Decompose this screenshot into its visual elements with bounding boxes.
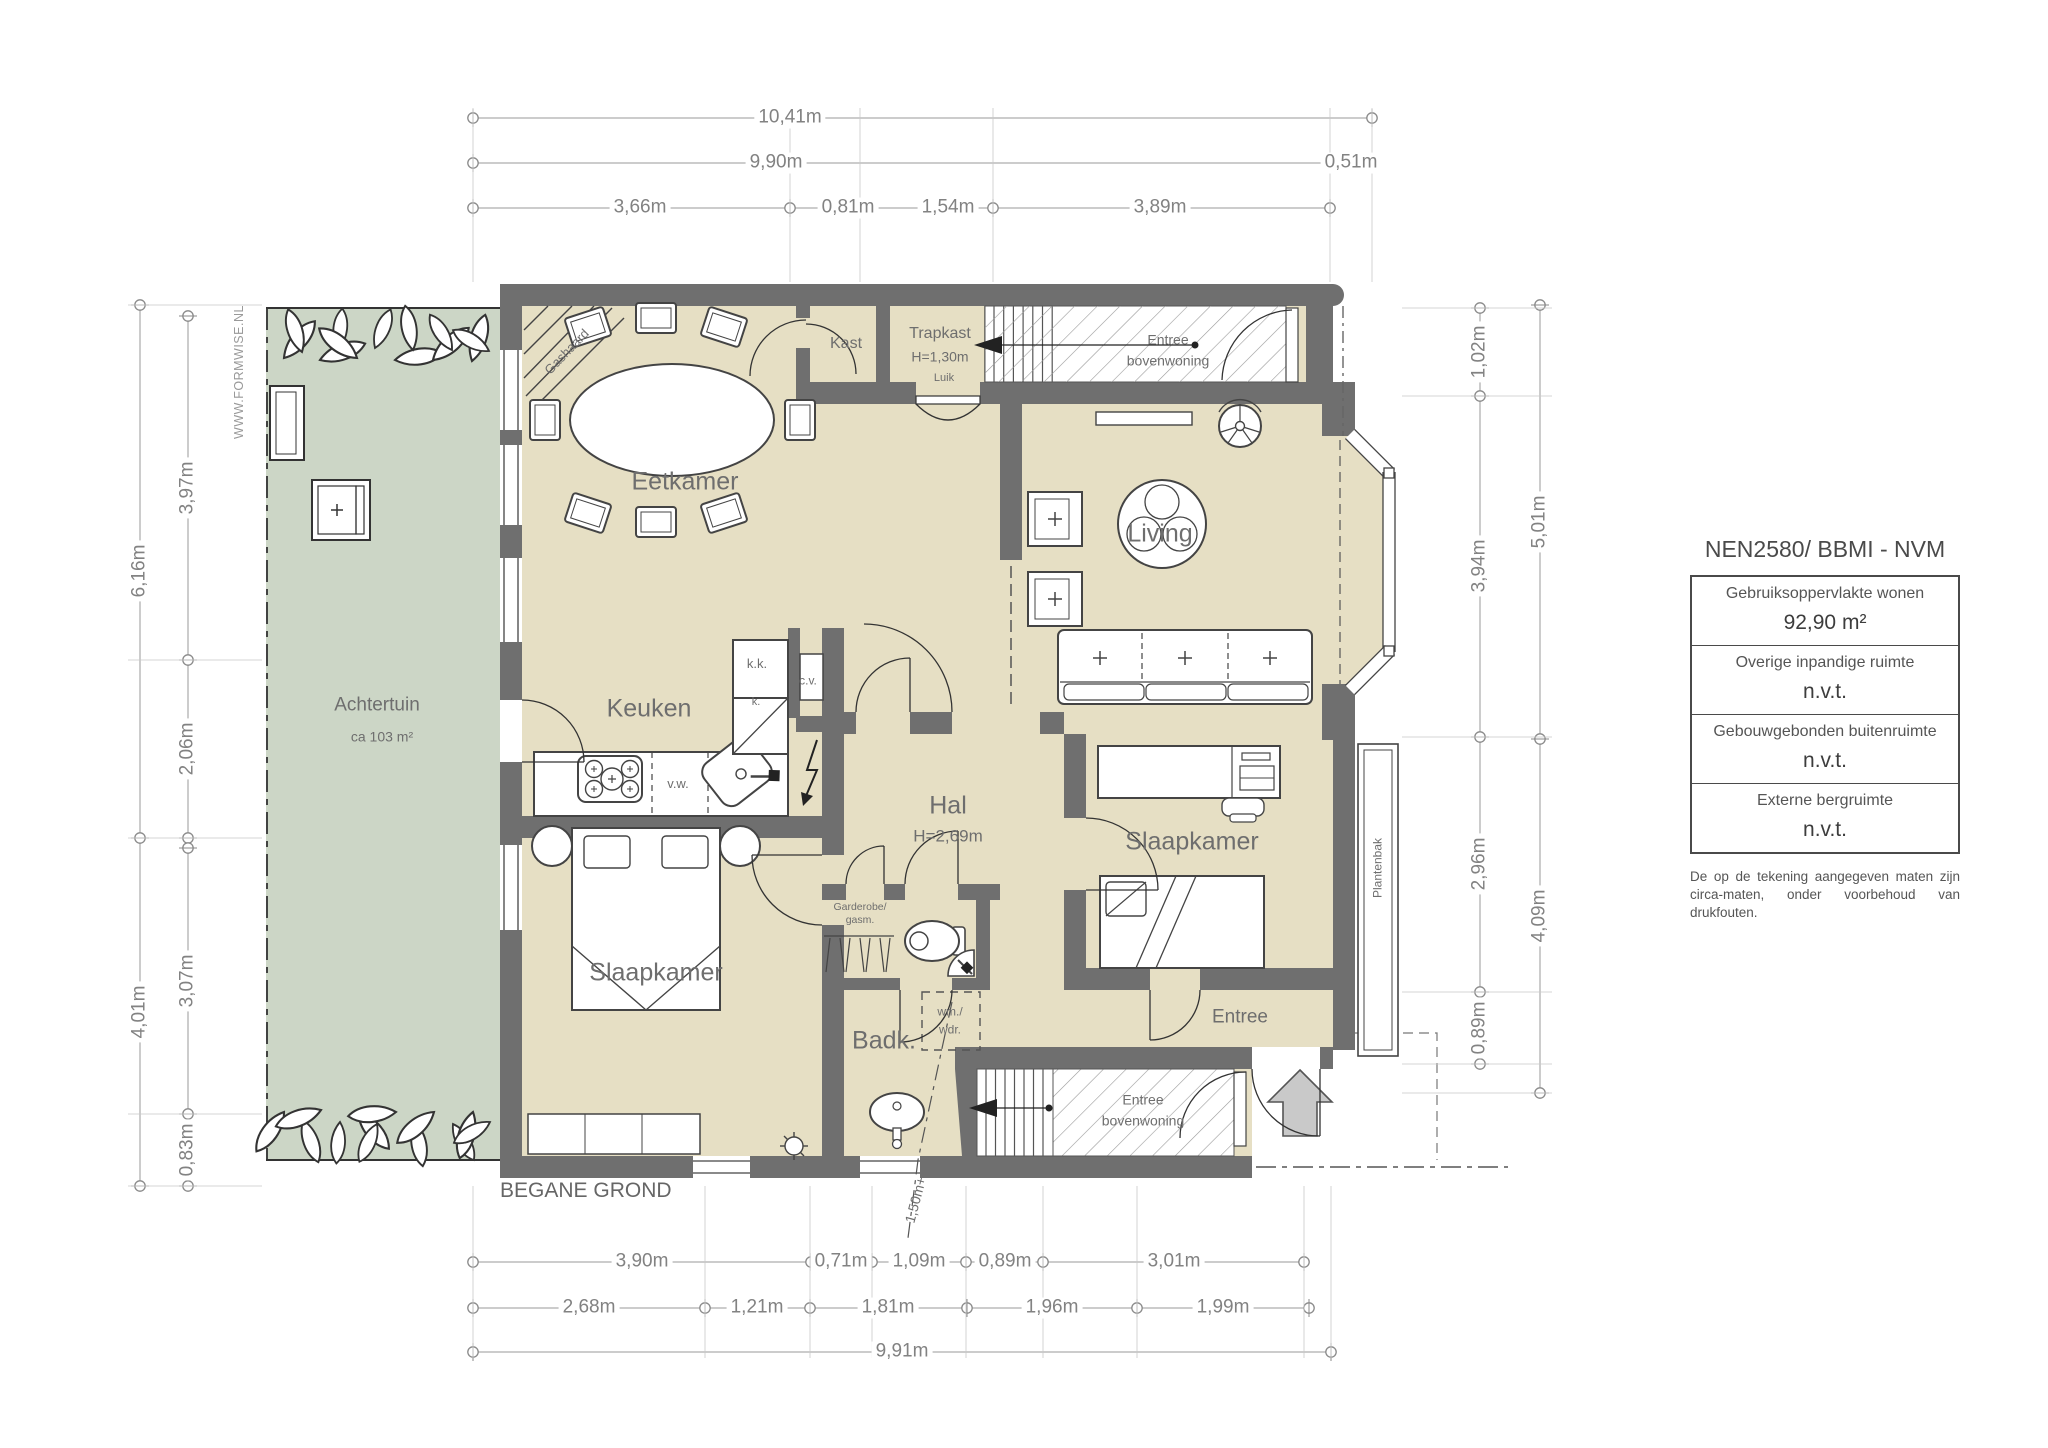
dimension-label: 1,09m bbox=[889, 1252, 950, 1273]
window-left-1 bbox=[500, 350, 522, 430]
toilet bbox=[905, 921, 965, 961]
wm-label-2: wdr. bbox=[939, 1023, 961, 1036]
garden-area-label: ca 103 m² bbox=[351, 729, 413, 744]
garderobe-label-1: Garderobe/ bbox=[833, 902, 886, 914]
dimension-label: 4,01m bbox=[130, 982, 151, 1043]
kk-label: k.k. bbox=[747, 657, 767, 671]
dining-table bbox=[570, 364, 774, 476]
dimension-label: 1,21m bbox=[727, 1298, 788, 1319]
garderobe-label-2: gasm. bbox=[846, 915, 875, 927]
legend-row: Overige inpandige ruimte n.v.t. bbox=[1692, 645, 1958, 714]
hal-height-label: H=2,69m bbox=[913, 828, 982, 847]
sideboard bbox=[1096, 412, 1192, 425]
dimension-label: 3,97m bbox=[178, 458, 199, 519]
entree-boven-bottom-label-1: Entree bbox=[1122, 1092, 1163, 1107]
window-left-2 bbox=[500, 445, 522, 525]
room-label-hal: Hal bbox=[929, 792, 967, 820]
dimension-label: 4,09m bbox=[1530, 886, 1551, 947]
garden-chair bbox=[312, 480, 370, 540]
watermark: WWW.FORMWISE.NL bbox=[233, 305, 247, 439]
legend-row: Externe bergruimte n.v.t. bbox=[1692, 783, 1958, 852]
dimension-label: 0,51m bbox=[1321, 153, 1382, 174]
garden-label: Achtertuin bbox=[334, 696, 420, 717]
dimension-label: 3,89m bbox=[1130, 198, 1191, 219]
room-label-kast: Kast bbox=[830, 335, 862, 353]
wardrobe bbox=[528, 1114, 700, 1154]
legend-title: NEN2580/ BBMI - NVM bbox=[1690, 536, 1960, 563]
sofa bbox=[1058, 630, 1312, 704]
dimension-label: 1,99m bbox=[1193, 1298, 1254, 1319]
dimension-label: 3,90m bbox=[612, 1252, 673, 1273]
room-label-living: Living bbox=[1127, 520, 1192, 548]
window-left-4 bbox=[500, 845, 522, 930]
legend-panel: NEN2580/ BBMI - NVM Gebruiksoppervlakte … bbox=[1690, 536, 1960, 923]
garden-bench bbox=[270, 386, 304, 460]
dimension-label: 3,66m bbox=[610, 198, 671, 219]
room-label-slaapkamer-right: Slaapkamer bbox=[1125, 828, 1258, 856]
window-bottom-1 bbox=[693, 1156, 750, 1178]
dimension-label: 6,16m bbox=[130, 541, 151, 602]
legend-row: Gebruiksoppervlakte wonen 92,90 m² bbox=[1692, 577, 1958, 645]
door-jamb bbox=[1234, 1072, 1246, 1146]
dimension-label: 1,96m bbox=[1022, 1298, 1083, 1319]
k-label: k. bbox=[752, 696, 761, 708]
entree-boven-top-label-2: bovenwoning bbox=[1127, 353, 1210, 368]
legend-table: Gebruiksoppervlakte wonen 92,90 m² Overi… bbox=[1690, 575, 1960, 854]
room-label-eetkamer: Eetkamer bbox=[632, 468, 739, 496]
floor-plan-page: Eetkamer Living Keuken Hal H=2,69m Slaap… bbox=[0, 0, 2048, 1448]
dimension-label: 0,89m bbox=[1470, 998, 1491, 1059]
room-label-trapkast: Trapkast bbox=[909, 325, 971, 343]
dimension-label: 2,96m bbox=[1470, 834, 1491, 895]
planter-box bbox=[1358, 744, 1398, 1056]
dimension-label: 0,89m bbox=[975, 1252, 1036, 1273]
entrance-porch bbox=[1252, 1047, 1333, 1156]
door-jamb bbox=[1286, 308, 1298, 382]
dimension-label: 0,83m bbox=[178, 1120, 199, 1181]
entree-boven-top-label-1: Entree bbox=[1147, 332, 1188, 347]
vw-label: v.w. bbox=[667, 777, 688, 791]
dimension-label: 3,01m bbox=[1144, 1252, 1205, 1273]
legend-row: Gebouwgebonden buitenruimte n.v.t. bbox=[1692, 714, 1958, 783]
plantenbak-label: Plantenbak bbox=[1371, 838, 1384, 898]
room-label-keuken: Keuken bbox=[607, 695, 692, 723]
dimension-label: 3,07m bbox=[178, 951, 199, 1012]
dimension-label: 2,06m bbox=[178, 719, 199, 780]
nightstand bbox=[532, 826, 572, 866]
dimension-label: 10,41m bbox=[754, 108, 825, 129]
legend-note: De op de tekening aangegeven maten zijn … bbox=[1690, 868, 1960, 923]
dimension-label: 1,54m bbox=[918, 198, 979, 219]
cv-label: c.v. bbox=[799, 674, 817, 687]
plan-title: BEGANE GROND bbox=[500, 1179, 672, 1203]
wm-label-1: wm./ bbox=[937, 1005, 962, 1018]
stove bbox=[578, 756, 642, 802]
room-label-slaapkamer-left: Slaapkamer bbox=[589, 959, 722, 987]
dimension-label: 0,71m bbox=[811, 1252, 872, 1273]
dimension-label: 9,90m bbox=[746, 153, 807, 174]
dimension-label: 1,02m bbox=[1470, 322, 1491, 383]
room-label-badkamer: Badk. bbox=[852, 1027, 916, 1055]
window-bottom-2 bbox=[860, 1156, 920, 1178]
washbasin bbox=[870, 1093, 924, 1131]
dimension-label: 3,94m bbox=[1470, 536, 1491, 597]
dimension-label: 2,68m bbox=[559, 1298, 620, 1319]
entree-bovenwoning-top bbox=[974, 306, 1298, 382]
trapkast-height-label: H=1,30m bbox=[911, 349, 968, 364]
entree-boven-bottom-label-2: bovenwoning bbox=[1102, 1113, 1185, 1128]
luik-label: Luik bbox=[934, 372, 954, 384]
nightstand bbox=[720, 826, 760, 866]
dimension-label: 5,01m bbox=[1530, 492, 1551, 553]
room-label-entree: Entree bbox=[1212, 1008, 1268, 1029]
dimension-label: 1,81m bbox=[858, 1298, 919, 1319]
garden-door-opening bbox=[500, 700, 522, 762]
dimension-label: 0,81m bbox=[818, 198, 879, 219]
dimension-label: 9,91m bbox=[872, 1342, 933, 1363]
desk-chair bbox=[1222, 798, 1264, 816]
window-left-3 bbox=[500, 558, 522, 642]
